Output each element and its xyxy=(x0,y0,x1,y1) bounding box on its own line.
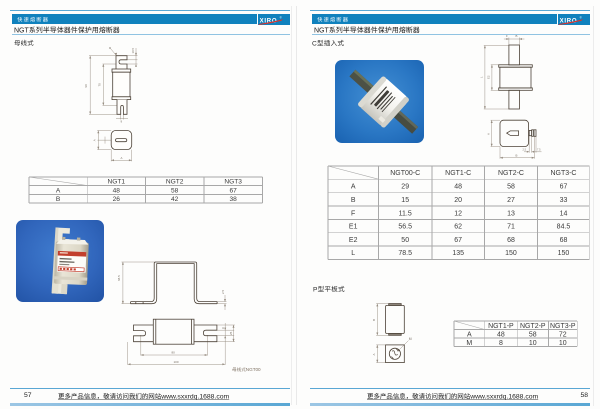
svg-text:84.5: 84.5 xyxy=(557,224,571,231)
svg-text:25: 25 xyxy=(229,331,233,335)
svg-text:NGT3: NGT3 xyxy=(224,179,242,186)
svg-text:NGT1-C: NGT1-C xyxy=(445,170,471,177)
svg-text:62: 62 xyxy=(454,224,462,231)
svg-text:12: 12 xyxy=(454,211,462,218)
svg-text:48: 48 xyxy=(113,188,121,195)
svg-text:L: L xyxy=(351,251,355,258)
svg-text:7.5: 7.5 xyxy=(537,149,541,152)
svg-text:9: 9 xyxy=(221,327,225,329)
svg-text:29: 29 xyxy=(401,184,409,191)
svg-text:F: F xyxy=(506,34,508,38)
svg-text:NGT00-C: NGT00-C xyxy=(390,170,420,177)
svg-text:27: 27 xyxy=(507,197,515,204)
svg-text:R: R xyxy=(109,46,111,50)
svg-text:NGT2: NGT2 xyxy=(166,179,184,186)
svg-text:50: 50 xyxy=(401,237,409,244)
svg-text:48: 48 xyxy=(454,184,462,191)
svg-text:10: 10 xyxy=(529,339,537,346)
svg-text:®: ® xyxy=(579,15,582,19)
svg-text:C: C xyxy=(312,40,317,47)
svg-text:71: 71 xyxy=(507,224,515,231)
svg-text:B: B xyxy=(351,197,356,204)
svg-text:80: 80 xyxy=(172,351,176,355)
svg-text:NGT: NGT xyxy=(314,27,330,34)
svg-text:67: 67 xyxy=(559,184,567,191)
svg-text:E2: E2 xyxy=(487,75,491,79)
svg-text:90: 90 xyxy=(84,84,88,88)
svg-text:NGT1: NGT1 xyxy=(108,179,126,186)
svg-text:78.5: 78.5 xyxy=(398,251,412,258)
svg-text:42: 42 xyxy=(171,197,179,204)
svg-text:58: 58 xyxy=(507,184,515,191)
svg-text:135: 135 xyxy=(452,251,464,258)
svg-text:A: A xyxy=(487,133,491,135)
svg-text:B: B xyxy=(516,154,518,158)
svg-text:150: 150 xyxy=(558,251,570,258)
svg-text:NGT: NGT xyxy=(14,27,30,34)
svg-text:A: A xyxy=(56,188,61,195)
svg-text:72: 72 xyxy=(559,331,567,338)
svg-text:A: A xyxy=(467,331,472,338)
svg-text:NGT2-C: NGT2-C xyxy=(498,170,524,177)
svg-text:48: 48 xyxy=(497,331,505,338)
svg-text:E1: E1 xyxy=(349,224,358,231)
svg-text:68: 68 xyxy=(559,237,567,244)
svg-text:NGT2-P: NGT2-P xyxy=(520,322,546,329)
svg-text:F: F xyxy=(351,211,355,218)
svg-text:9: 9 xyxy=(121,120,123,124)
svg-text:10: 10 xyxy=(559,339,567,346)
svg-text:E2: E2 xyxy=(349,237,358,244)
svg-text:A: A xyxy=(121,156,123,160)
svg-text:58: 58 xyxy=(171,188,179,195)
svg-text:38: 38 xyxy=(230,197,238,204)
svg-text:26: 26 xyxy=(113,197,121,204)
svg-text:B: B xyxy=(372,319,376,321)
svg-text:13: 13 xyxy=(507,211,515,218)
svg-text:B: B xyxy=(516,34,518,38)
svg-text:A: A xyxy=(351,184,356,191)
svg-text:2.5: 2.5 xyxy=(523,149,527,152)
svg-text:67: 67 xyxy=(230,188,238,195)
svg-text:M: M xyxy=(467,339,473,346)
svg-text:NGT1-P: NGT1-P xyxy=(488,322,514,329)
svg-text:58: 58 xyxy=(529,331,537,338)
svg-text:NGT3-P: NGT3-P xyxy=(550,322,576,329)
svg-text:67: 67 xyxy=(454,237,462,244)
svg-text:150: 150 xyxy=(505,251,517,258)
svg-text:B: B xyxy=(56,197,61,204)
svg-text:33: 33 xyxy=(559,197,567,204)
svg-text:11.5: 11.5 xyxy=(399,211,412,218)
svg-text:M: M xyxy=(409,337,412,341)
svg-text:A: A xyxy=(372,353,376,355)
svg-text:P: P xyxy=(313,286,318,293)
svg-text:100: 100 xyxy=(174,360,179,364)
svg-text:14: 14 xyxy=(559,211,567,218)
svg-text:®: ® xyxy=(279,15,282,19)
svg-text:70: 70 xyxy=(97,83,101,87)
svg-text:15: 15 xyxy=(401,197,409,204)
svg-text:56.5: 56.5 xyxy=(398,224,412,231)
svg-text:68.5: 68.5 xyxy=(117,275,121,281)
svg-text:10.5: 10.5 xyxy=(131,47,135,53)
svg-text:A: A xyxy=(92,139,96,141)
svg-text:20: 20 xyxy=(454,197,462,204)
svg-text:68: 68 xyxy=(507,237,515,244)
svg-text:2.5: 2.5 xyxy=(221,289,225,294)
svg-text:8: 8 xyxy=(499,339,503,346)
svg-text:NGT3-C: NGT3-C xyxy=(550,170,576,177)
svg-text:L: L xyxy=(480,76,484,78)
